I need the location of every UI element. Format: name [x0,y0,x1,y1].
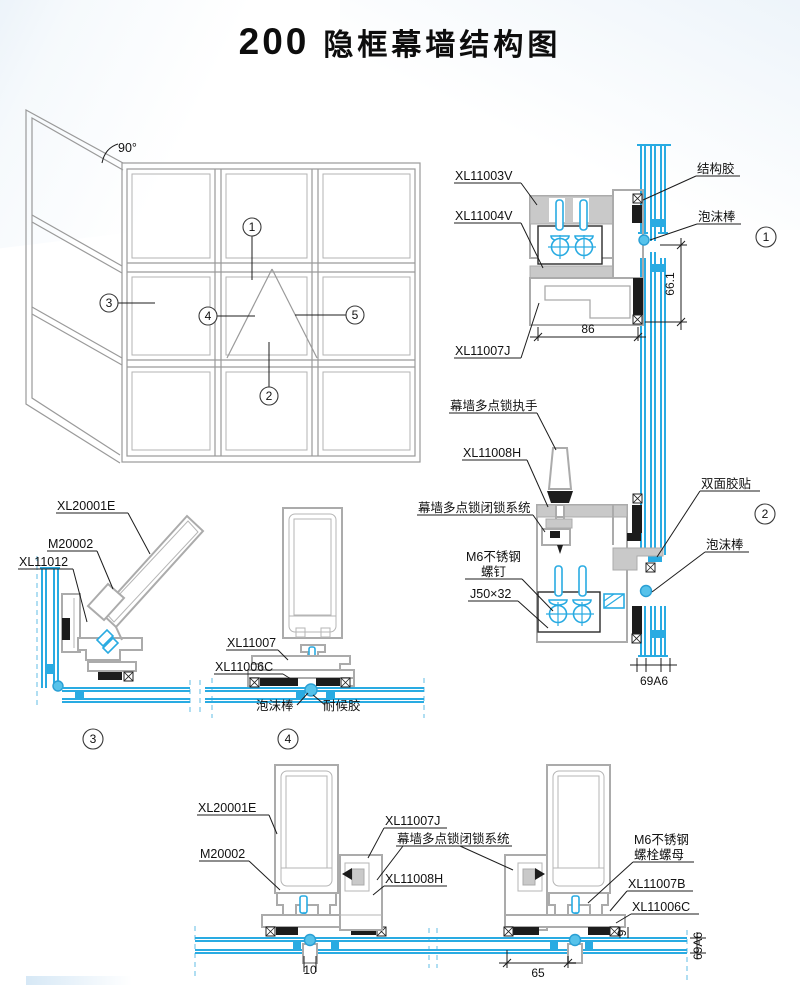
label-xl11008h: XL11008H [462,446,548,507]
dim-glass-text: 69A6 [640,674,668,688]
detail-2-number: 2 [755,504,775,524]
diagonal-sash-panel [88,516,203,653]
callout-5-number: 5 [352,308,359,322]
profile-xl11007j [530,278,643,325]
foam-rod-dot [639,235,649,245]
label-structural-sealant: 结构胶 [643,161,740,200]
callout-5: 5 [295,306,364,324]
svg-text:XL11006C: XL11006C [632,900,690,914]
svg-text:XL11007: XL11007 [227,636,276,650]
foam-rod-dot [570,935,581,946]
callout-1: 1 [243,218,261,280]
drawing-page: 200隐框幕墙结构图 [0,0,800,987]
dim-width-text: 86 [581,322,595,336]
callout-2-number: 2 [266,389,273,403]
angle-label: 90° [118,141,137,155]
horizontal-glass [62,688,424,702]
svg-text:双面胶贴: 双面胶贴 [701,476,751,491]
svg-text:1: 1 [763,230,770,244]
multipoint-lock-mechanism [542,519,572,554]
svg-text:XL11007J: XL11007J [385,814,440,828]
side-wing [26,110,123,463]
openable-sash-symbol [227,269,317,358]
foam-rod-dot [641,586,652,597]
svg-text:3: 3 [90,732,97,746]
svg-text:M20002: M20002 [48,537,93,551]
structure-drawing: 90° 1 2 3 4 [0,0,800,987]
svg-text:9: 9 [615,929,629,936]
bottom-section: 10 65 9 69A6 XL20001E [195,765,706,980]
svg-text:J50×32: J50×32 [470,587,511,601]
dim-glass-69a6-bottom: 69A6 [690,932,706,960]
label-xl11007j: XL11007J [454,303,539,358]
elevation-view: 90° 1 2 3 4 [26,110,420,463]
svg-text:幕墙多点锁闭锁系统: 幕墙多点锁闭锁系统 [397,831,510,846]
detail-1-number: 1 [756,227,776,247]
svg-text:M6不锈钢: M6不锈钢 [466,549,521,564]
dim-65: 65 [499,950,576,980]
svg-text:4: 4 [285,732,292,746]
svg-text:幕墙多点锁闭锁系统: 幕墙多点锁闭锁系统 [418,500,531,515]
dim-glass-69a6: 69A6 [630,658,677,688]
label-lock-system: 幕墙多点锁闭锁系统 [417,500,545,532]
vertical-glass [40,568,60,688]
svg-text:泡沫棒: 泡沫棒 [706,538,744,552]
label-xl11006c-bottom: XL11006C [616,900,699,923]
horizontal-glass-run [195,938,687,953]
dim-height-text: 66.1 [663,272,677,296]
svg-text:泡沫棒: 泡沫棒 [256,699,294,713]
svg-text:XL11007B: XL11007B [628,877,685,891]
label-weather-sealant: 耐候胶 [313,695,361,713]
angle-annotation: 90° [102,141,137,163]
detail-3-number: 3 [83,729,103,749]
svg-text:螺钉: 螺钉 [481,565,507,579]
svg-text:XL20001E: XL20001E [57,499,115,513]
mullion-profile [283,508,342,676]
foam-rod-dot [53,681,63,691]
svg-text:泡沫棒: 泡沫棒 [698,210,736,224]
joint-tongue-left [303,944,317,963]
foam-rod-dot [305,935,316,946]
gaskets [250,678,350,687]
svg-text:XL11008H: XL11008H [463,446,521,460]
callout-1-number: 1 [249,220,256,234]
callout-4: 4 [199,307,255,325]
svg-text:XL11006C: XL11006C [215,660,273,674]
screw-box-j50x32 [538,566,624,632]
svg-text:XL11012: XL11012 [19,555,68,569]
detail-1-section: 86 66.1 XL11003V XL11004V XL110 [454,161,776,358]
detail-3-section: XL20001E M20002 XL11012 3 [18,499,203,749]
svg-text:69A6: 69A6 [691,932,705,960]
svg-text:65: 65 [531,966,545,980]
svg-text:XL11008H: XL11008H [385,872,443,886]
detail-2-section: 69A6 幕墙多点锁执手 XL11008H 幕墙多点锁闭锁系统 M6不锈钢 螺钉 [417,398,775,688]
svg-text:XL11007J: XL11007J [455,344,510,358]
svg-text:耐候胶: 耐候胶 [323,698,361,713]
svg-text:螺栓螺母: 螺栓螺母 [634,847,684,862]
svg-text:10: 10 [303,963,317,977]
label-xl20001e-bottom: XL20001E [197,801,277,834]
label-xl11003v: XL11003V [454,169,537,205]
detail-4-number: 4 [278,729,298,749]
label-m20002-bottom: M20002 [199,847,280,890]
label-xl11008h-bottom: XL11008H [373,872,447,895]
svg-text:M20002: M20002 [200,847,245,861]
callout-3-number: 3 [106,296,113,310]
right-mullion-assembly [504,765,625,936]
label-foam-rod-2: 泡沫棒 [652,538,749,592]
callout-4-number: 4 [205,309,212,323]
callout-2: 2 [260,342,278,405]
joint-tongue-right [568,944,582,963]
svg-text:2: 2 [762,507,769,521]
svg-text:结构胶: 结构胶 [697,161,735,176]
svg-text:M6不锈钢: M6不锈钢 [634,832,689,847]
svg-text:幕墙多点锁执手: 幕墙多点锁执手 [450,398,538,413]
svg-text:XL20001E: XL20001E [198,801,256,815]
svg-text:XL11004V: XL11004V [455,209,513,223]
svg-text:XL11003V: XL11003V [455,169,513,183]
left-mullion-assembly [262,765,386,936]
front-grid [122,163,420,462]
label-handle: 幕墙多点锁执手 [449,398,556,450]
